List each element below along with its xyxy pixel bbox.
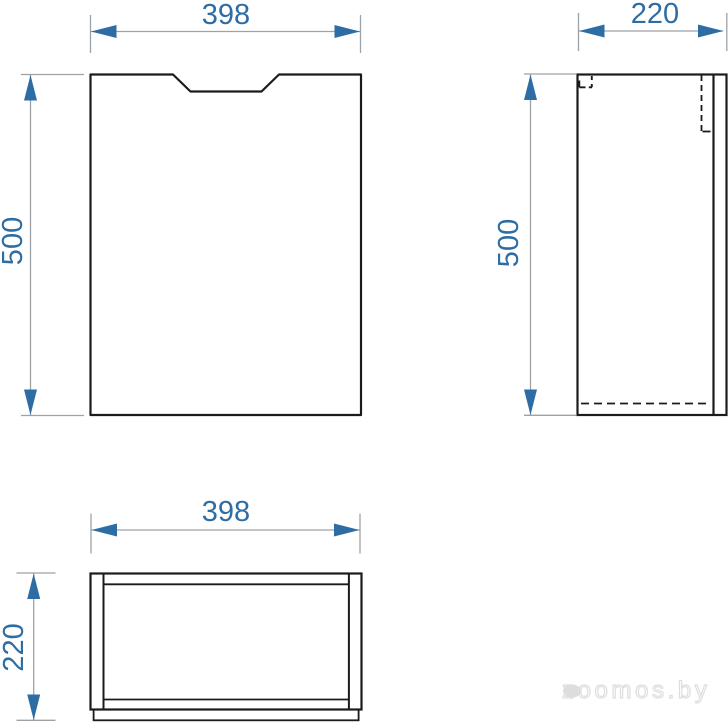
svg-text:398: 398 — [202, 0, 250, 31]
svg-text:398: 398 — [202, 496, 250, 528]
svg-text:220: 220 — [0, 623, 30, 671]
svg-text:500: 500 — [0, 217, 29, 265]
svg-text:500: 500 — [493, 219, 525, 267]
svg-text:zoomos.by: zoomos.by — [562, 677, 710, 704]
svg-text:220: 220 — [631, 0, 679, 30]
